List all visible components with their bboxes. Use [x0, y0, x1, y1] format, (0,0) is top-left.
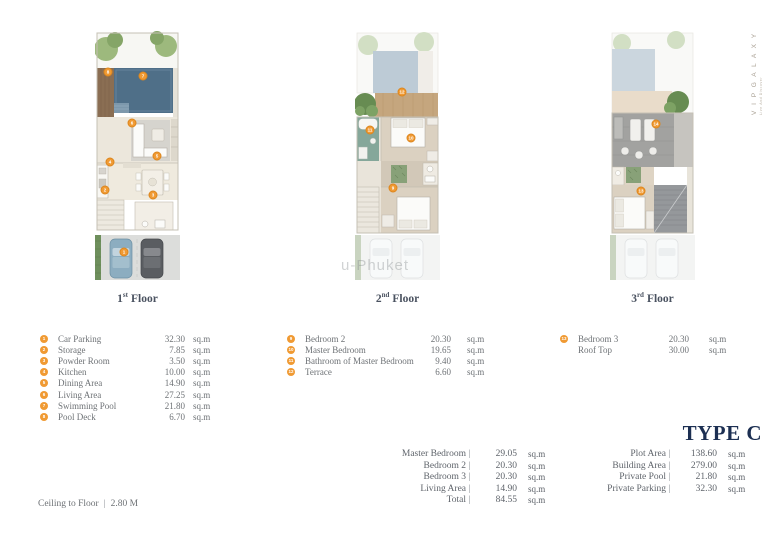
terrace-tree: [355, 93, 378, 117]
legend-room-name: Bedroom 3: [568, 334, 658, 344]
legend-floor-3: 13Bedroom 320.30sq.mRoof Top30.00sq.m: [560, 333, 739, 355]
summary-right: Plot Area|138.60sq.mBuilding Area|279.00…: [548, 449, 764, 495]
legend-area-unit: sq.m: [451, 345, 497, 355]
car-blue: [110, 239, 132, 278]
brand-name: V I P G A L A X Y: [751, 15, 758, 115]
floor-3-label: 3rdFloor: [610, 291, 695, 305]
floor-word: Floor: [647, 293, 674, 305]
legend-number-badge: 2: [40, 346, 48, 354]
legend-room-area: 30.00: [658, 345, 689, 355]
summary-row: Master Bedroom|29.05sq.m: [348, 449, 564, 461]
floor-1-label: 1stFloor: [95, 291, 180, 305]
legend-row: 6Living Area27.25sq.m: [40, 389, 223, 400]
stairs-dark: [654, 167, 693, 233]
legend-row: 2Storage7.85sq.m: [40, 344, 223, 355]
legend-area-unit: sq.m: [451, 367, 497, 377]
summary-unit: sq.m: [717, 484, 764, 496]
plan-marker-6: 6: [128, 119, 137, 128]
legend-row: 8Pool Deck6.70sq.m: [40, 411, 223, 422]
summary-unit: sq.m: [517, 495, 564, 507]
legend-number-badge: 13: [560, 335, 568, 343]
summary-value: 138.60: [673, 449, 717, 461]
legend-number-badge: 8: [40, 413, 48, 421]
legend-room-name: Kitchen: [48, 367, 153, 377]
hallway-closet: [381, 161, 438, 187]
floorplan-3-drawing: [610, 15, 695, 280]
plan-marker-5: 5: [153, 152, 162, 161]
separator: |: [666, 449, 673, 461]
stairs: [97, 200, 124, 230]
legend-area-unit: sq.m: [451, 334, 497, 344]
garden-area: [95, 31, 178, 70]
legend-area-unit: sq.m: [185, 356, 223, 366]
legend-number-badge: 11: [287, 357, 295, 365]
legend-room-area: 9.40: [417, 356, 451, 366]
legend-room-area: 20.30: [658, 334, 689, 344]
summary-row: Private Parking|32.30sq.m: [548, 484, 764, 496]
separator: |: [666, 484, 673, 496]
summary-value: 84.55: [473, 495, 517, 507]
living-area: [97, 117, 178, 163]
plan-marker-2: 2: [101, 186, 110, 195]
legend-room-area: 6.70: [153, 412, 185, 422]
summary-label: Private Parking: [548, 484, 666, 496]
plan-marker-11: 11: [366, 126, 375, 135]
summary-value: 21.80: [673, 472, 717, 484]
separator: |: [466, 461, 473, 473]
floor-word: Floor: [392, 293, 419, 305]
legend-room-area: 6.60: [417, 367, 451, 377]
powder-room: [135, 202, 173, 230]
parking-faded: [610, 235, 695, 280]
legend-room-area: 32.30: [153, 334, 185, 344]
terrace: [375, 93, 438, 117]
summary-label: Living Area: [348, 484, 466, 496]
summary-unit: sq.m: [717, 449, 764, 461]
plan-marker-4: 4: [106, 158, 115, 167]
legend-floor-1: 1Car Parking32.30sq.m2Storage7.85sq.m3Po…: [40, 333, 223, 423]
plan-marker-10: 10: [407, 134, 416, 143]
brand-vertical: V I P G A L A X Y Live And Discover: [751, 15, 768, 115]
separator: |: [466, 449, 473, 461]
brochure-page: 87645231: [0, 0, 777, 550]
summary-row: Private Pool|21.80sq.m: [548, 472, 764, 484]
plan-marker-7: 7: [139, 72, 148, 81]
summary-row: Bedroom 2|20.30sq.m: [348, 461, 564, 473]
legend-number-badge: 12: [287, 368, 295, 376]
plan-marker-9: 9: [389, 184, 398, 193]
legend-area-unit: sq.m: [185, 390, 223, 400]
legend-number-badge: 1: [40, 335, 48, 343]
separator: |: [104, 499, 106, 509]
summary-label: Building Area: [548, 461, 666, 473]
legend-row: 1Car Parking32.30sq.m: [40, 333, 223, 344]
legend-row: 3Powder Room3.50sq.m: [40, 355, 223, 366]
summary-row: Plot Area|138.60sq.m: [548, 449, 764, 461]
legend-room-name: Master Bedroom: [295, 345, 417, 355]
legend-number-badge: 5: [40, 379, 48, 387]
legend-row: 10Master Bedroom19.65sq.m: [287, 344, 497, 355]
floor-2-label: 2ndFloor: [355, 291, 440, 305]
bedroom-3: [612, 185, 654, 233]
car-dark: [141, 239, 163, 278]
plan-marker-14: 14: [652, 120, 661, 129]
legend-floor-2: 9Bedroom 220.30sq.m10Master Bedroom19.65…: [287, 333, 497, 378]
legend-area-unit: sq.m: [185, 345, 223, 355]
legend-row: 7Swimming Pool21.80sq.m: [40, 400, 223, 411]
legend-area-unit: sq.m: [185, 401, 223, 411]
legend-room-area: 14.90: [153, 378, 185, 388]
legend-room-name: Terrace: [295, 367, 417, 377]
summary-label: Master Bedroom: [348, 449, 466, 461]
legend-number-badge: 3: [40, 357, 48, 365]
legend-number-badge: 6: [40, 391, 48, 399]
legend-room-name: Storage: [48, 345, 153, 355]
legend-row: Roof Top30.00sq.m: [560, 344, 739, 355]
floorplan-2-drawing: [355, 15, 440, 280]
summary-unit: sq.m: [717, 461, 764, 473]
summary-row: Total|84.55sq.m: [348, 495, 564, 507]
bathroom-3: [612, 167, 654, 185]
legend-area-unit: sq.m: [689, 334, 739, 344]
summary-value: 32.30: [673, 484, 717, 496]
legend-room-name: Car Parking: [48, 334, 153, 344]
legend-room-area: 7.85: [153, 345, 185, 355]
kitchen: [97, 163, 178, 200]
stairs: [357, 187, 379, 233]
master-bathroom: [357, 117, 379, 161]
legend-room-name: Swimming Pool: [48, 401, 153, 411]
summary-label: Bedroom 3: [348, 472, 466, 484]
legend-area-unit: sq.m: [185, 412, 223, 422]
car-parking: [95, 235, 180, 280]
summary-label: Total: [348, 495, 466, 507]
separator: |: [666, 472, 673, 484]
plan-marker-3: 3: [149, 191, 158, 200]
separator: |: [466, 472, 473, 484]
legend-room-area: 19.65: [417, 345, 451, 355]
floorplan-3: 1413: [610, 15, 695, 280]
summary-label: Bedroom 2: [348, 461, 466, 473]
faded-garden-pool: [357, 32, 438, 93]
legend-area-unit: sq.m: [185, 378, 223, 388]
legend-room-area: 3.50: [153, 356, 185, 366]
summary-unit: sq.m: [717, 472, 764, 484]
floor-ordinal: nd: [382, 291, 390, 299]
plan-marker-13: 13: [637, 187, 646, 196]
floor-word: Floor: [131, 293, 158, 305]
floorplan-1-drawing: [95, 15, 180, 280]
separator: |: [666, 461, 673, 473]
legend-row: 12Terrace6.60sq.m: [287, 367, 497, 378]
separator: |: [466, 495, 473, 507]
legend-number-badge: 10: [287, 346, 295, 354]
legend-number-badge: 9: [287, 335, 295, 343]
summary-row: Bedroom 3|20.30sq.m: [348, 472, 564, 484]
separator: |: [466, 484, 473, 496]
brand-tagline: Live And Discover: [759, 15, 763, 115]
legend-row: 4Kitchen10.00sq.m: [40, 367, 223, 378]
legend-row: 13Bedroom 320.30sq.m: [560, 333, 739, 344]
legend-room-area: 20.30: [417, 334, 451, 344]
ceiling-note: Ceiling to Floor|2.80 M: [38, 499, 138, 509]
legend-area-unit: sq.m: [451, 356, 497, 366]
legend-room-name: Pool Deck: [48, 412, 153, 422]
legend-room-name: Dining Area: [48, 378, 153, 388]
legend-number-badge: 4: [40, 368, 48, 376]
legend-row: 11Bathroom of Master Bedroom9.40sq.m: [287, 355, 497, 366]
plan-marker-1: 1: [120, 248, 129, 257]
legend-row: 9Bedroom 220.30sq.m: [287, 333, 497, 344]
watermark: u-Phuket: [341, 257, 409, 274]
summary-left: Master Bedroom|29.05sq.mBedroom 2|20.30s…: [348, 449, 564, 507]
legend-room-name: Bedroom 2: [295, 334, 417, 344]
summary-row: Living Area|14.90sq.m: [348, 484, 564, 496]
legend-room-area: 10.00: [153, 367, 185, 377]
floorplan-2: 1211109: [355, 15, 440, 280]
summary-value: 279.00: [673, 461, 717, 473]
legend-room-name: Bathroom of Master Bedroom: [295, 356, 417, 366]
summary-value: 29.05: [473, 449, 517, 461]
type-title: TYPE C: [683, 421, 762, 446]
plan-marker-8: 8: [104, 68, 113, 77]
legend-area-unit: sq.m: [185, 367, 223, 377]
legend-room-name: Roof Top: [568, 345, 658, 355]
legend-number-badge: 7: [40, 402, 48, 410]
bedroom-2: [381, 187, 438, 233]
ceiling-value: 2.80 M: [111, 499, 138, 509]
floor-ordinal: st: [123, 291, 128, 299]
ceiling-label: Ceiling to Floor: [38, 499, 99, 509]
floor-ordinal: rd: [637, 291, 644, 299]
summary-value: 20.30: [473, 472, 517, 484]
legend-room-area: 27.25: [153, 390, 185, 400]
legend-room-name: Powder Room: [48, 356, 153, 366]
summary-value: 14.90: [473, 484, 517, 496]
legend-area-unit: sq.m: [185, 334, 223, 344]
floorplan-1: 87645231: [95, 15, 180, 280]
summary-label: Private Pool: [548, 472, 666, 484]
legend-row: 5Dining Area14.90sq.m: [40, 378, 223, 389]
plan-marker-12: 12: [398, 88, 407, 97]
legend-room-area: 21.80: [153, 401, 185, 411]
legend-room-name: Living Area: [48, 390, 153, 400]
summary-value: 20.30: [473, 461, 517, 473]
summary-row: Building Area|279.00sq.m: [548, 461, 764, 473]
legend-area-unit: sq.m: [689, 345, 739, 355]
summary-label: Plot Area: [548, 449, 666, 461]
